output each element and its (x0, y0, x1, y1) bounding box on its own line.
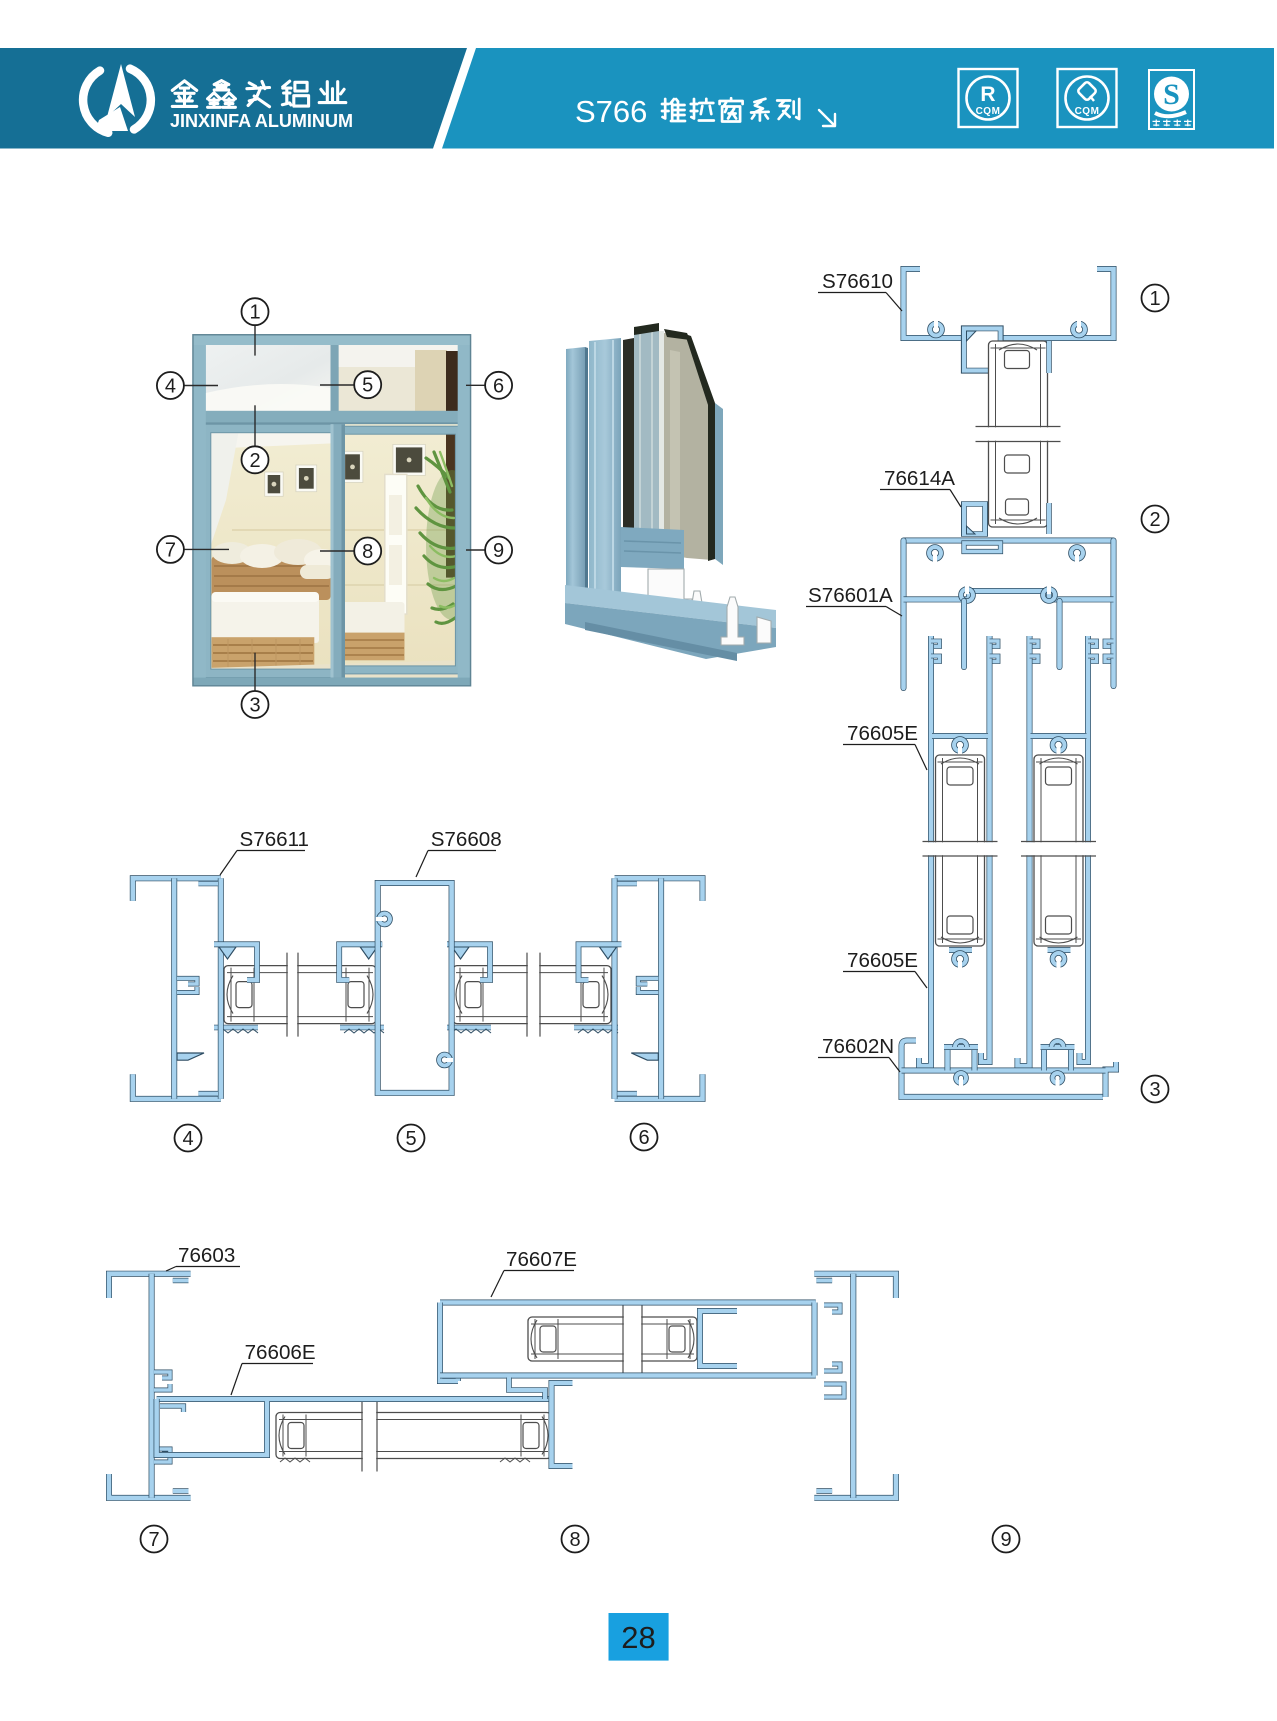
svg-text:5: 5 (362, 375, 373, 397)
svg-text:76602N: 76602N (822, 1035, 894, 1058)
svg-text:1: 1 (1149, 288, 1160, 310)
svg-text:S: S (1163, 78, 1180, 111)
svg-text:76614A: 76614A (884, 467, 955, 490)
svg-text:4: 4 (182, 1128, 193, 1150)
svg-text:CQM: CQM (976, 106, 1001, 117)
svg-text:3: 3 (249, 695, 260, 717)
svg-text:S76601A: S76601A (808, 584, 893, 607)
svg-text:1: 1 (249, 302, 260, 324)
svg-text:5: 5 (405, 1128, 416, 1150)
svg-text:76603: 76603 (178, 1244, 235, 1267)
svg-text:76606E: 76606E (245, 1341, 316, 1364)
svg-text:S76610: S76610 (822, 270, 893, 293)
svg-text:S76611: S76611 (240, 828, 309, 851)
svg-text:8: 8 (569, 1529, 580, 1551)
svg-text:6: 6 (638, 1127, 649, 1149)
svg-text:7: 7 (165, 539, 176, 561)
svg-text:S76608: S76608 (431, 828, 502, 851)
svg-text:3: 3 (1149, 1079, 1160, 1101)
svg-text:8: 8 (362, 541, 373, 563)
svg-text:6: 6 (493, 375, 504, 397)
svg-text:2: 2 (249, 450, 260, 472)
svg-text:7: 7 (148, 1529, 159, 1551)
svg-text:9: 9 (1000, 1529, 1011, 1551)
svg-text:4: 4 (165, 376, 176, 398)
svg-text:76605E: 76605E (847, 722, 918, 745)
svg-text:S766: S766 (575, 94, 647, 129)
svg-text:R: R (980, 83, 995, 106)
svg-text:28: 28 (621, 1620, 655, 1655)
svg-text:76607E: 76607E (506, 1248, 577, 1271)
svg-text:2: 2 (1149, 509, 1160, 531)
svg-text:76605E: 76605E (847, 949, 918, 972)
svg-text:CQM: CQM (1075, 106, 1100, 117)
svg-text:JINXINFA ALUMINUM: JINXINFA ALUMINUM (170, 111, 353, 131)
svg-text:9: 9 (493, 540, 504, 562)
